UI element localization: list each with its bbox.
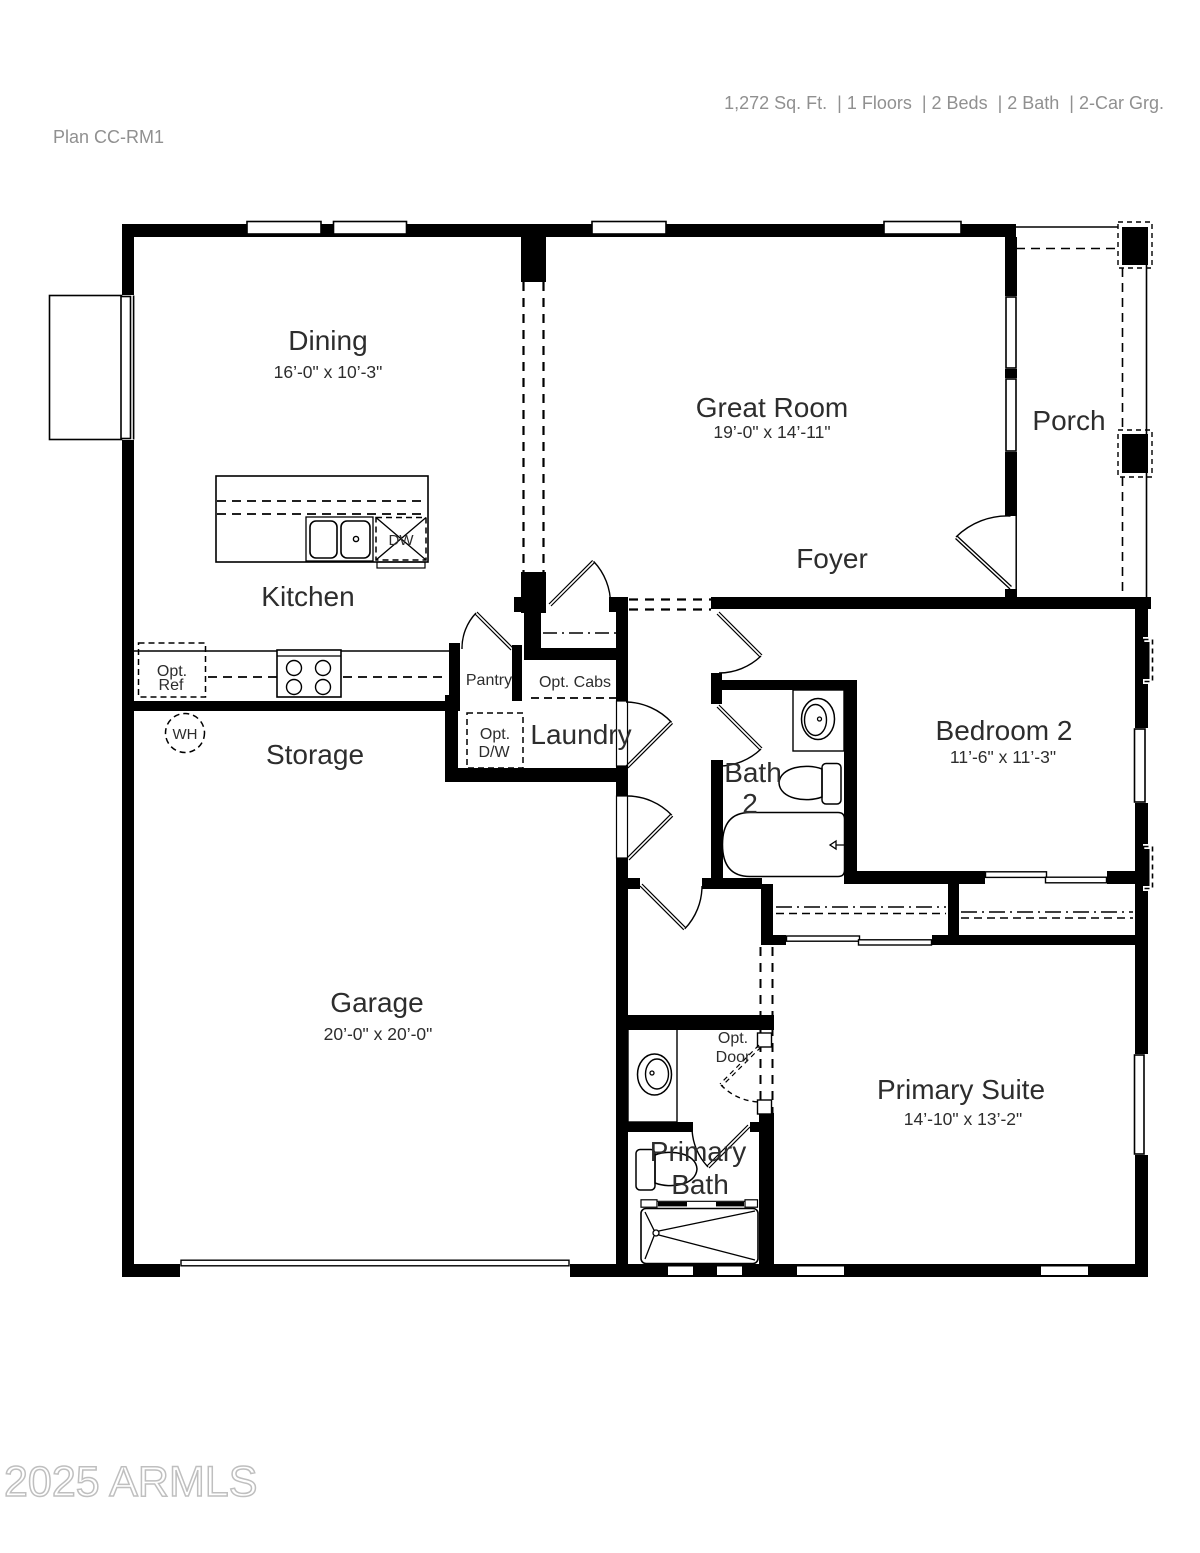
svg-text:Bath: Bath — [724, 757, 782, 788]
svg-text:Primary: Primary — [650, 1136, 746, 1167]
svg-text:Opt.: Opt. — [718, 1030, 748, 1047]
svg-text:Bedroom 2: Bedroom 2 — [936, 715, 1073, 746]
svg-text:14’-10" x 13’-2": 14’-10" x 13’-2" — [904, 1109, 1022, 1129]
svg-text:Ref: Ref — [159, 677, 184, 694]
svg-text:16’-0" x 10’-3": 16’-0" x 10’-3" — [274, 362, 383, 382]
svg-text:Great Room: Great Room — [696, 392, 849, 423]
svg-text:Porch: Porch — [1032, 405, 1105, 436]
svg-text:Dining: Dining — [288, 325, 367, 356]
svg-text:Plan CC-RM1: Plan CC-RM1 — [53, 127, 164, 147]
svg-text:D/W: D/W — [478, 744, 510, 761]
svg-text:Door: Door — [716, 1049, 751, 1066]
svg-text:Pantry: Pantry — [466, 672, 512, 689]
svg-text:Primary Suite: Primary Suite — [877, 1074, 1045, 1105]
svg-text:1,272 Sq. Ft. | 1 Floors | 2: 1,272 Sq. Ft. | 1 Floors | 2 Beds | 2 Ba… — [724, 93, 1164, 113]
svg-text:2025 ARMLS: 2025 ARMLS — [4, 1458, 257, 1506]
svg-text:11’-6" x 11’-3": 11’-6" x 11’-3" — [950, 747, 1056, 767]
svg-text:DW: DW — [389, 532, 415, 549]
svg-text:Opt. Cabs: Opt. Cabs — [539, 674, 611, 691]
svg-text:19’-0" x 14’-11": 19’-0" x 14’-11" — [713, 422, 830, 442]
svg-text:WH: WH — [173, 726, 198, 743]
svg-text:2: 2 — [742, 788, 758, 819]
svg-text:Laundry: Laundry — [530, 719, 631, 750]
svg-text:Storage: Storage — [266, 739, 364, 770]
svg-text:Kitchen: Kitchen — [261, 581, 354, 612]
svg-text:Foyer: Foyer — [796, 543, 868, 574]
svg-text:Opt.: Opt. — [480, 726, 510, 743]
svg-text:Garage: Garage — [330, 987, 423, 1018]
svg-text:Bath: Bath — [671, 1169, 729, 1200]
svg-text:20’-0" x 20’-0": 20’-0" x 20’-0" — [324, 1024, 433, 1044]
